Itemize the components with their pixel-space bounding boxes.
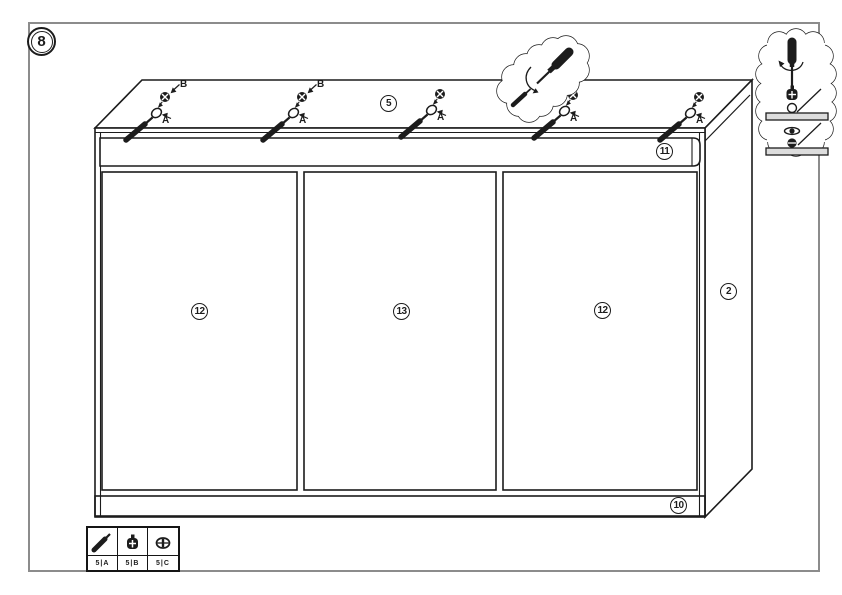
legend-cell-screw xyxy=(88,528,118,556)
callout-bottom-rail: 10 xyxy=(670,497,687,514)
label-cam-position-3: A xyxy=(437,111,444,124)
cam-lock-icon xyxy=(785,128,800,135)
front-frame xyxy=(95,128,705,517)
assembly-detail-inset xyxy=(756,29,836,156)
label-cam-position-4: A xyxy=(570,112,577,125)
pilot-hole xyxy=(788,104,797,113)
step-number-badge: 8 xyxy=(27,27,56,56)
top-rail xyxy=(100,138,700,166)
callout-screw-pack: 5 xyxy=(380,95,397,112)
assembly-instruction-page: 8 5 11 12 13 12 2 10 A A A A A B B xyxy=(0,0,842,595)
step-number: 8 xyxy=(31,31,53,53)
legend-cell-cam-lock xyxy=(148,528,178,556)
cam-bolt-icon xyxy=(120,529,146,555)
assembly-diagram xyxy=(0,0,842,595)
callout-side-panel: 2 xyxy=(720,283,737,300)
label-cam-position-2: A xyxy=(299,114,306,127)
legend-cell-cam-bolt xyxy=(118,528,148,556)
legend-code-screw: 5|A xyxy=(88,556,118,570)
label-screw-position-1: B xyxy=(180,78,187,91)
top-panel xyxy=(95,80,752,128)
label-cam-position-1: A xyxy=(162,114,169,127)
callout-center-door: 13 xyxy=(393,303,410,320)
label-cam-position-5: A xyxy=(696,114,703,127)
cam-lock-icon xyxy=(150,529,176,555)
screw-icon xyxy=(90,529,116,555)
label-screw-position-2: B xyxy=(317,78,324,91)
panel-edge xyxy=(766,113,828,120)
legend-code-cam-bolt: 5|B xyxy=(118,556,148,570)
wardrobe-cabinet xyxy=(95,80,752,517)
callout-right-door: 12 xyxy=(594,302,611,319)
callout-top-rail: 11 xyxy=(656,143,673,160)
hardware-legend: 5|A 5|B 5|C xyxy=(86,526,180,572)
callout-left-door: 12 xyxy=(191,303,208,320)
panel-edge xyxy=(766,148,828,155)
legend-code-cam-lock: 5|C xyxy=(148,556,178,570)
cam-top-icon xyxy=(787,138,796,147)
